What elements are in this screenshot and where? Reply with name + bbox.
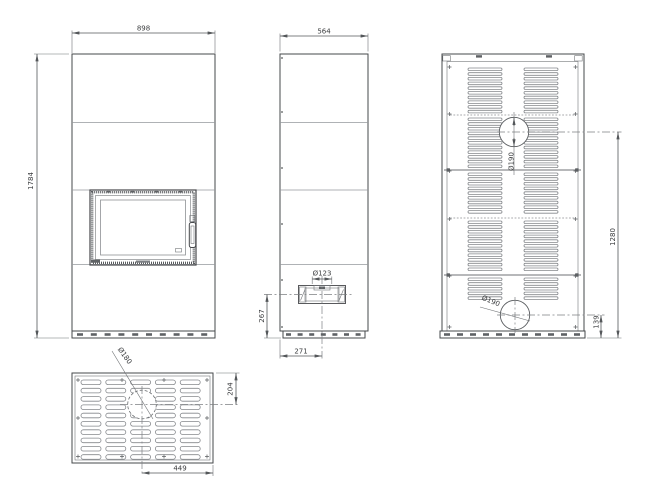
vent-slot xyxy=(524,201,558,204)
vent-slot xyxy=(524,92,558,95)
technical-drawing-sheet: 898 1784 564 Ø123 xyxy=(0,0,650,499)
vent-slot xyxy=(155,397,175,402)
vent-slot xyxy=(524,197,558,200)
vent-slot xyxy=(468,182,502,185)
vent-slot xyxy=(468,165,502,168)
dim-upper-flue-diameter-label: Ø190 xyxy=(508,152,516,171)
vent-slot xyxy=(524,192,558,195)
base-vent-mark xyxy=(344,333,349,336)
vent-slot xyxy=(524,151,558,154)
top-edge-clip xyxy=(476,55,482,57)
vent-slot xyxy=(468,192,502,195)
base-vent-mark xyxy=(496,333,502,336)
vent-slot xyxy=(468,110,502,113)
vent-slot xyxy=(468,197,502,200)
vent-slot xyxy=(468,278,502,281)
vent-slot xyxy=(524,82,558,85)
vent-slot xyxy=(468,142,502,145)
vent-slot xyxy=(468,235,502,238)
vent-slot xyxy=(131,422,151,427)
base-vent-mark xyxy=(91,333,97,336)
dim-flue-height-label: 1280 xyxy=(609,228,617,246)
vent-slot xyxy=(131,430,151,435)
vent-slot xyxy=(468,92,502,95)
base-vent-mark xyxy=(356,333,361,336)
side-fasteners xyxy=(281,57,283,328)
vent-slot xyxy=(468,127,502,130)
vent-slot xyxy=(524,245,558,248)
front-body xyxy=(72,54,215,331)
vent-slot xyxy=(81,397,101,402)
vent-slot xyxy=(180,446,200,451)
vent-slot xyxy=(155,380,175,385)
base-vent-mark xyxy=(187,333,193,336)
base-vent-mark xyxy=(201,333,207,336)
vent-slot xyxy=(468,87,502,90)
vent-slot xyxy=(468,146,502,149)
base-vent-mark xyxy=(105,333,111,336)
vent-slot xyxy=(524,297,558,300)
firebox-door xyxy=(90,190,196,265)
base-vent-mark xyxy=(574,333,580,336)
vent-slot xyxy=(468,123,502,126)
vent-slot xyxy=(468,156,502,159)
front-view: 898 1784 xyxy=(27,25,215,339)
base-vent-mark xyxy=(457,333,463,336)
vent-slot xyxy=(524,137,558,140)
screw-mark xyxy=(448,217,452,221)
dim-top-flue-diameter-label: Ø180 xyxy=(116,346,134,366)
screw-mark xyxy=(76,455,80,459)
fireplace-drawing: 898 1784 564 Ø123 xyxy=(0,0,650,499)
dim-front-width-label: 898 xyxy=(137,25,150,33)
seam-dot xyxy=(281,279,283,281)
vent-slot xyxy=(524,254,558,257)
vent-slot xyxy=(524,226,558,229)
screw-mark xyxy=(574,112,578,116)
vent-slot xyxy=(106,397,126,402)
seam-dot xyxy=(281,167,283,169)
front-base-vents xyxy=(77,333,207,336)
vent-slot xyxy=(524,165,558,168)
vent-slot xyxy=(81,380,101,385)
vent-slot xyxy=(468,151,502,154)
vent-slot xyxy=(468,206,502,209)
vent-slot xyxy=(180,380,200,385)
back-vent-slots xyxy=(468,68,558,299)
vent-slot xyxy=(468,96,502,99)
vent-slot xyxy=(468,287,502,290)
base-vent-mark xyxy=(535,333,541,336)
vent-slot xyxy=(106,446,126,451)
vent-slot xyxy=(155,455,175,460)
vent-slot xyxy=(524,73,558,76)
vent-slot xyxy=(468,211,502,214)
dim-outlet-diameter-label: Ø123 xyxy=(313,270,332,278)
vent-slot xyxy=(524,68,558,71)
vent-slot xyxy=(524,268,558,271)
door-hinge xyxy=(91,260,100,263)
vent-slot xyxy=(524,240,558,243)
vent-slot xyxy=(106,455,126,460)
vent-slot xyxy=(524,123,558,126)
vent-slot xyxy=(81,405,101,410)
vent-slot xyxy=(524,182,558,185)
vent-slot xyxy=(524,118,558,121)
back-body xyxy=(442,54,584,331)
vent-slot xyxy=(180,430,200,435)
top-edge-clip xyxy=(546,55,552,57)
screw-mark xyxy=(574,65,578,69)
vent-slot xyxy=(468,160,502,163)
base-vent-mark xyxy=(509,333,515,336)
vent-slot xyxy=(155,405,175,410)
vent-slot xyxy=(155,413,175,418)
base-vent-mark xyxy=(548,333,554,336)
side-view: 564 Ø123 267 271 xyxy=(258,28,368,359)
vent-slot xyxy=(155,388,175,393)
vent-slot xyxy=(106,388,126,393)
vent-slot xyxy=(468,77,502,80)
side-base-vents xyxy=(286,333,361,336)
vent-slot xyxy=(524,142,558,145)
vent-slot xyxy=(468,245,502,248)
seam-dot xyxy=(281,111,283,113)
dim-front-height-label: 1784 xyxy=(27,172,35,190)
vent-slot xyxy=(106,405,126,410)
vent-slot xyxy=(524,249,558,252)
base-vent-mark xyxy=(132,333,138,336)
vent-slot xyxy=(524,283,558,286)
vent-slot xyxy=(524,211,558,214)
base-vent-mark xyxy=(321,333,326,336)
screw-mark xyxy=(448,325,452,329)
vent-slot xyxy=(468,187,502,190)
vent-slot xyxy=(106,380,126,385)
vent-slot xyxy=(468,268,502,271)
vent-slot xyxy=(468,68,502,71)
base-vent-mark xyxy=(470,333,476,336)
vent-slot xyxy=(468,249,502,252)
vent-slot xyxy=(180,455,200,460)
dim-flue-from-back-label: 204 xyxy=(227,382,235,396)
vent-slot xyxy=(155,422,175,427)
vent-slot xyxy=(81,446,101,451)
vent-slot xyxy=(524,96,558,99)
vent-slot xyxy=(524,101,558,104)
vent-slot xyxy=(524,292,558,295)
vent-slot xyxy=(524,206,558,209)
vent-slot xyxy=(468,240,502,243)
base-vent-mark xyxy=(286,333,291,336)
vent-slot xyxy=(468,137,502,140)
vent-slot xyxy=(180,405,200,410)
vent-slot xyxy=(180,413,200,418)
vent-slot xyxy=(155,438,175,443)
base-vent-mark xyxy=(160,333,166,336)
vent-slot xyxy=(524,235,558,238)
vent-slot xyxy=(524,278,558,281)
vent-slot xyxy=(81,455,101,460)
screw-mark xyxy=(574,217,578,221)
vent-slot xyxy=(131,438,151,443)
vent-slot xyxy=(524,221,558,224)
screw-mark xyxy=(205,378,209,382)
top-corner-bracket xyxy=(575,56,583,61)
vent-slot xyxy=(468,259,502,262)
vent-slot xyxy=(81,430,101,435)
screw-mark xyxy=(205,416,209,420)
vent-slot xyxy=(524,259,558,262)
vent-slot xyxy=(468,254,502,257)
vent-slot xyxy=(524,263,558,266)
base-vent-mark xyxy=(483,333,489,336)
screw-mark xyxy=(205,455,209,459)
vent-slot xyxy=(131,380,151,385)
vent-slot xyxy=(81,388,101,393)
vent-slot xyxy=(524,77,558,80)
seam-dot xyxy=(281,223,283,225)
vent-slot xyxy=(81,413,101,418)
vent-slot xyxy=(524,110,558,113)
top-corner-bracket xyxy=(443,56,451,61)
vent-slot xyxy=(524,127,558,130)
screw-mark xyxy=(574,325,578,329)
vent-slot xyxy=(131,446,151,451)
dim-side-depth-label: 564 xyxy=(317,28,331,36)
base-vent-mark xyxy=(309,333,314,336)
base-vent-mark xyxy=(298,333,303,336)
dim-outlet-offset-label: 271 xyxy=(294,348,307,356)
base-vent-mark xyxy=(77,333,83,336)
vent-slot xyxy=(180,388,200,393)
vent-slot xyxy=(180,397,200,402)
vent-slot xyxy=(524,87,558,90)
base-vent-mark xyxy=(174,333,180,336)
base-vent-mark xyxy=(444,333,450,336)
vent-slot xyxy=(468,221,502,224)
vent-slot xyxy=(524,156,558,159)
vent-slot xyxy=(524,160,558,163)
frame-tick xyxy=(179,191,182,193)
frame-tick xyxy=(107,191,110,193)
vent-slot xyxy=(155,446,175,451)
vent-slot xyxy=(155,430,175,435)
dim-lower-flue-height-label: 139 xyxy=(593,315,601,328)
vent-slot xyxy=(524,230,558,233)
vent-slot xyxy=(106,422,126,427)
vent-slot xyxy=(524,287,558,290)
base-vent-mark xyxy=(146,333,152,336)
vent-slot xyxy=(180,422,200,427)
vent-slot xyxy=(131,455,151,460)
vent-slot xyxy=(524,106,558,109)
vent-slot xyxy=(524,146,558,149)
vent-slot xyxy=(468,132,502,135)
frame-tick xyxy=(131,191,134,193)
dim-outlet-height-label: 267 xyxy=(258,309,266,322)
base-vent-mark xyxy=(332,333,337,336)
vent-slot xyxy=(468,283,502,286)
vent-slot xyxy=(106,438,126,443)
vent-slot xyxy=(81,438,101,443)
dim-lower-flue-diameter-label: Ø190 xyxy=(481,294,501,308)
vent-slot xyxy=(81,422,101,427)
screw-mark xyxy=(448,112,452,116)
vent-slot xyxy=(468,226,502,229)
screw-mark xyxy=(448,65,452,69)
vent-slot xyxy=(468,201,502,204)
vent-slot xyxy=(524,173,558,176)
vent-slot xyxy=(468,263,502,266)
vent-slot xyxy=(468,173,502,176)
door-bottom-vent xyxy=(136,261,150,263)
frame-tick xyxy=(155,191,158,193)
base-vent-mark xyxy=(561,333,567,336)
base-vent-mark xyxy=(118,333,124,336)
seam-dot xyxy=(281,57,283,59)
vent-slot xyxy=(468,106,502,109)
back-view: Ø190 Ø190 1280 139 xyxy=(440,54,622,338)
vent-slot xyxy=(468,118,502,121)
vent-slot xyxy=(468,101,502,104)
seam-dot xyxy=(281,326,283,328)
vent-slot xyxy=(180,438,200,443)
door-glass xyxy=(101,200,186,255)
vent-slot xyxy=(106,413,126,418)
side-body xyxy=(280,54,368,331)
vent-slot xyxy=(468,82,502,85)
vent-slot xyxy=(524,187,558,190)
base-vent-mark xyxy=(522,333,528,336)
top-view: Ø180 204 449 xyxy=(72,346,240,476)
vent-slot xyxy=(524,178,558,181)
vent-slot xyxy=(106,430,126,435)
screw-mark xyxy=(76,378,80,382)
screw-mark xyxy=(76,416,80,420)
vent-slot xyxy=(468,230,502,233)
back-base-vents xyxy=(444,333,580,336)
vent-slot xyxy=(468,178,502,181)
dim-flue-from-side-label: 449 xyxy=(173,465,186,473)
vent-slot xyxy=(468,73,502,76)
